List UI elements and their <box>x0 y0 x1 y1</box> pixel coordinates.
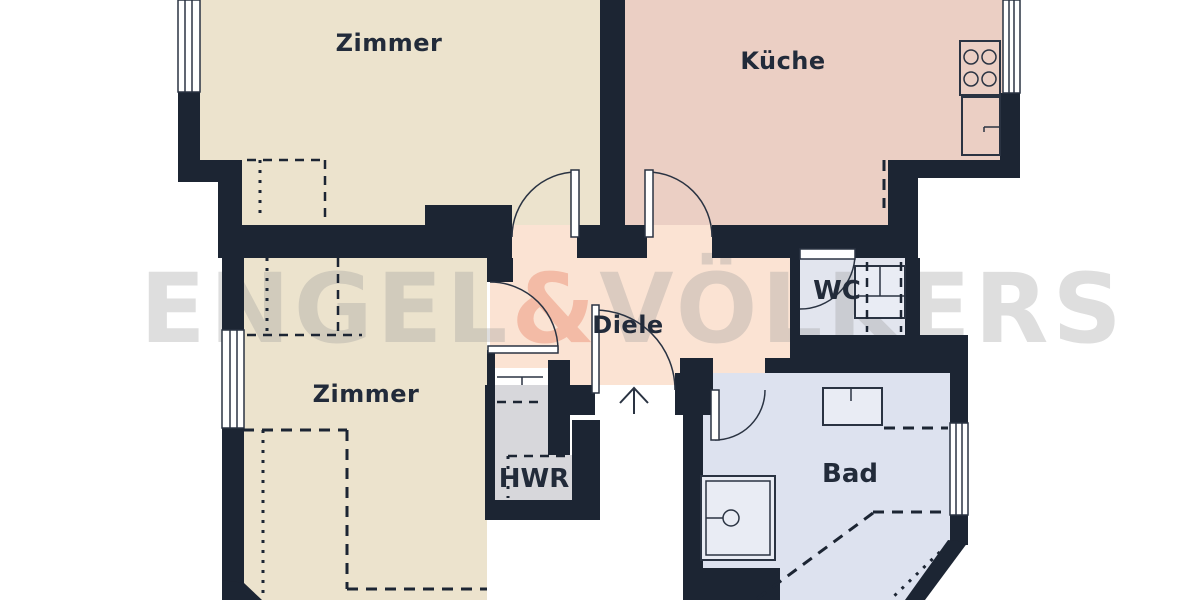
room-label-kueche: Küche <box>740 47 825 75</box>
window-zimmer-bottom <box>222 330 244 428</box>
room-label-zimmer-top: Zimmer <box>336 29 443 57</box>
entrance-arrow-icon <box>620 388 648 414</box>
shower-icon <box>701 476 775 560</box>
window-kueche <box>1003 0 1020 93</box>
room-label-diele: Diele <box>592 311 663 339</box>
watermark-engel: ENGEL <box>140 253 511 365</box>
watermark-text: ENGEL&VÖLKERS <box>140 252 1126 365</box>
bath-sink-icon <box>823 388 882 425</box>
window-bad <box>950 423 968 515</box>
room-label-wc: WC <box>813 276 861 306</box>
window-zimmer-top <box>178 0 200 92</box>
room-label-bad: Bad <box>822 459 878 489</box>
floor-plan-canvas: ENGEL&VÖLKERS <box>0 0 1200 600</box>
room-label-hwr: HWR <box>499 464 569 494</box>
room-label-zimmer-bottom: Zimmer <box>313 380 420 408</box>
stove-icon <box>960 41 1000 95</box>
kitchen-sink-icon <box>962 97 1000 155</box>
kueche-floor <box>625 0 1003 228</box>
floor-plan-drawing: ENGEL&VÖLKERS <box>0 0 1200 600</box>
door-hwr <box>495 368 548 385</box>
wc-toilet-icon <box>855 266 905 318</box>
